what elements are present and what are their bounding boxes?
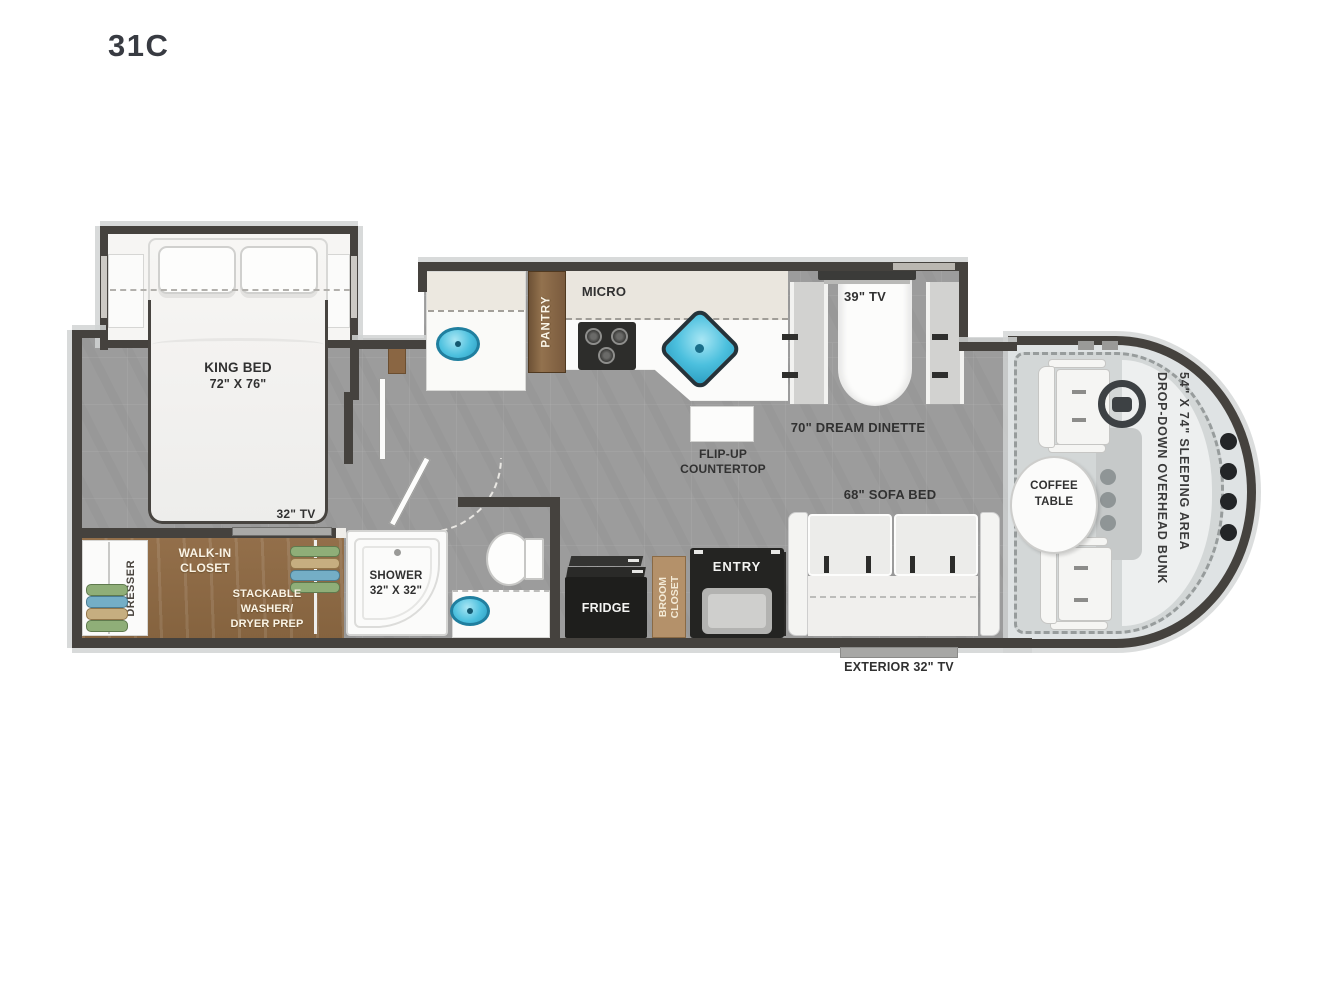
sofa-fold-line — [810, 596, 976, 598]
dash-dot — [1220, 524, 1237, 541]
pantry-label: PANTRY — [540, 296, 553, 348]
hall-cabinet — [388, 346, 406, 374]
shower-label-2: 32" X 32" — [346, 585, 446, 598]
passenger-seat-back — [1040, 544, 1057, 624]
seat-belt — [950, 556, 955, 573]
hanging-clothes — [290, 558, 340, 569]
sofa-armrest-left — [788, 512, 808, 636]
driver-seat-seam — [1072, 390, 1086, 394]
broom-closet-label-wrap: BROOM CLOSET — [652, 556, 686, 638]
broom-label-line1: BROOM — [657, 576, 669, 619]
flip-up-countertop — [690, 406, 754, 442]
dinette-armrest — [782, 334, 798, 340]
dinette-tv-lip — [824, 280, 910, 284]
folded-clothes — [86, 608, 128, 620]
fridge-flap-slit — [628, 559, 639, 562]
bedroom-tv — [232, 527, 332, 536]
sofa-label: 68" SOFA BED — [800, 488, 980, 503]
plan-title: 31C — [108, 28, 169, 64]
kitchen-top-window — [893, 263, 955, 270]
dinette-armrest — [782, 372, 798, 378]
broom-closet-label: BROOM CLOSET — [657, 576, 681, 619]
driver-seat-seam — [1072, 418, 1086, 422]
bed-fold-line — [152, 338, 324, 351]
toilet-tank — [524, 538, 544, 580]
driver-seat-back — [1038, 366, 1055, 448]
exterior-tv-label: EXTERIOR 32" TV — [817, 660, 981, 674]
entry-step-inner — [708, 594, 766, 628]
sofa-back-cushion — [894, 514, 978, 576]
kitchen-top-wall — [418, 262, 968, 271]
vanity-overhead-cabinet — [427, 272, 525, 310]
dash-dot — [1220, 433, 1237, 450]
vanity-left-stub-wall — [418, 262, 427, 292]
bathroom-top-wall — [458, 497, 560, 507]
washer-label-2: WASHER/ — [205, 603, 329, 616]
stove-burner — [585, 328, 602, 345]
dash-dot — [1220, 463, 1237, 480]
dinette-tv-label: 39" TV — [820, 290, 910, 305]
dinette-label: 70" DREAM DINETTE — [758, 421, 958, 436]
king-bed-label-2: 72" X 76" — [148, 377, 328, 391]
bedroom-tv-label: 32" TV — [246, 508, 346, 522]
kitchen-sink-drain — [695, 344, 704, 353]
passenger-seat-cushion — [1058, 547, 1112, 621]
passenger-seat-seam — [1074, 598, 1088, 602]
bed-pillow-right — [240, 246, 318, 294]
hanging-clothes — [290, 546, 340, 557]
stove-burner — [598, 347, 615, 364]
dash-dot — [1220, 493, 1237, 510]
drop-down-bunk-label: DROP-DOWN OVERHEAD BUNK 54" X 74" SLEEPI… — [1150, 372, 1194, 634]
dinette-right-wall — [959, 262, 968, 351]
cab-top-tab — [1102, 341, 1118, 350]
walk-in-closet-label-2: CLOSET — [150, 562, 260, 576]
coffee-table-label-2: TABLE — [1010, 496, 1098, 509]
entry-hinge — [694, 550, 703, 554]
driver-seat-armrest-top — [1048, 359, 1106, 368]
slide-window — [351, 256, 357, 318]
dinette-to-cab-wall — [959, 342, 1017, 351]
shower-label-1: SHOWER — [346, 570, 446, 583]
entry-hinge — [771, 550, 780, 554]
coffee-table-label-1: COFFEE — [1010, 480, 1098, 493]
pocket-door — [379, 378, 386, 460]
passenger-seat-seam — [1074, 566, 1088, 570]
dinette-armrest — [932, 334, 948, 340]
washer-label-3: DRYER PREP — [205, 618, 329, 631]
microwave-label: MICRO — [560, 285, 648, 300]
rear-wall — [72, 330, 82, 648]
entry-label: ENTRY — [690, 560, 784, 575]
hanging-clothes — [290, 570, 340, 581]
floorplan-canvas: 31C COFFEE TABLE DROP-DOWN OVERHEAD BUNK… — [0, 0, 1328, 996]
washer-label-1: STACKABLE — [205, 588, 329, 601]
cab-top-tab — [1078, 341, 1094, 350]
console-dot — [1100, 469, 1116, 485]
slide-window — [101, 256, 107, 318]
nightstand-left — [108, 254, 144, 328]
sofa-armrest-right — [980, 512, 1000, 636]
folded-clothes — [86, 620, 128, 632]
flip-up-label-1: FLIP-UP — [650, 448, 796, 462]
bath-sink-drain — [467, 608, 473, 614]
shower-drain — [394, 549, 401, 556]
bedroom-right-wall-lower — [344, 392, 353, 464]
bed-pillow-left — [158, 246, 236, 294]
seat-belt — [824, 556, 829, 573]
fridge-label: FRIDGE — [565, 601, 647, 615]
bathroom-right-wall — [550, 497, 560, 642]
wall-opening — [336, 528, 346, 538]
vanity-dashed-line — [428, 310, 524, 312]
console-dot — [1100, 515, 1116, 531]
folded-clothes — [86, 596, 128, 608]
folded-clothes — [86, 584, 128, 596]
console-dot — [1100, 492, 1116, 508]
walk-in-closet-label-1: WALK-IN — [150, 547, 260, 561]
bunk-label-line2: 54" X 74" SLEEPING AREA — [1172, 372, 1194, 634]
king-bed-label-1: KING BED — [148, 360, 328, 376]
vanity-sink-drain — [455, 341, 461, 347]
slide-wall-left — [100, 340, 108, 350]
bunk-label-line1: DROP-DOWN OVERHEAD BUNK — [1150, 372, 1172, 634]
slide-to-kitchen-wall — [352, 340, 426, 349]
flip-up-label-2: COUNTERTOP — [650, 463, 796, 477]
stove-burner — [611, 328, 628, 345]
broom-label-line2: CLOSET — [669, 576, 681, 619]
exterior-tv — [840, 647, 958, 658]
seat-belt — [910, 556, 915, 573]
slide-dashed-line — [110, 289, 350, 291]
sofa-seat — [808, 576, 978, 636]
steering-wheel-hub — [1112, 397, 1132, 412]
driver-seat-armrest-bottom — [1048, 444, 1106, 453]
sofa-back-cushion — [808, 514, 892, 576]
king-bed-outline-lower — [148, 300, 328, 524]
dinette-armrest — [932, 372, 948, 378]
fridge-flap-slit — [632, 570, 643, 573]
seat-belt — [866, 556, 871, 573]
passenger-seat-armrest-bottom — [1050, 621, 1108, 630]
